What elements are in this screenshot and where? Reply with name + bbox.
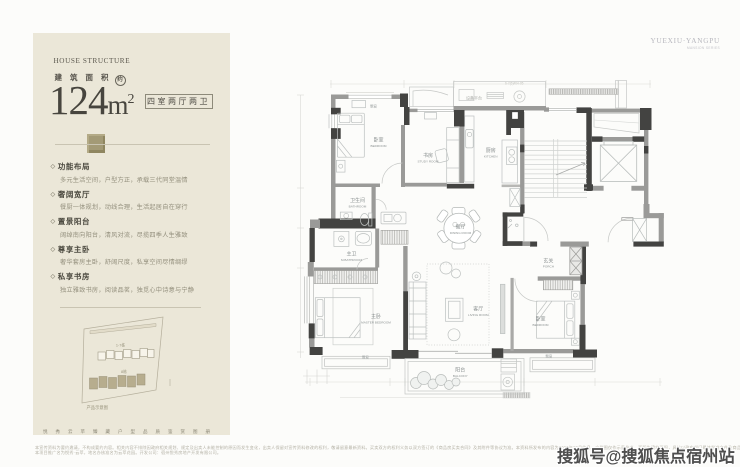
svg-text:飘窗: 飘窗 <box>546 354 553 359</box>
svg-text:MASTER BEDROOM: MASTER BEDROOM <box>361 321 391 325</box>
svg-text:书房: 书房 <box>423 152 433 159</box>
svg-text:1-7栋: 1-7栋 <box>116 343 125 348</box>
svg-text:BATHROOM: BATHROOM <box>349 205 367 209</box>
svg-text:主卧: 主卧 <box>371 313 381 320</box>
svg-text:厨房: 厨房 <box>486 147 496 154</box>
svg-text:8栋: 8栋 <box>121 369 127 374</box>
svg-text:卧室: 卧室 <box>535 316 545 323</box>
svg-text:卫生间: 卫生间 <box>350 197 365 204</box>
svg-text:玄关: 玄关 <box>543 258 553 265</box>
svg-text:BALCONY: BALCONY <box>453 374 468 378</box>
svg-text:飘窗: 飘窗 <box>362 355 369 360</box>
svg-text:客厅: 客厅 <box>473 306 483 313</box>
svg-text:设备平台: 设备平台 <box>466 95 482 101</box>
svg-text:餐厅: 餐厅 <box>455 224 465 231</box>
svg-text:LIVING ROOM: LIVING ROOM <box>468 313 489 317</box>
svg-text:BEDROOM: BEDROOM <box>533 323 549 327</box>
svg-text:DINING ROOM: DINING ROOM <box>450 231 472 235</box>
svg-text:阳台: 阳台 <box>455 367 465 374</box>
svg-text:卧室: 卧室 <box>373 137 383 144</box>
svg-text:KITCHEN: KITCHEN <box>484 155 498 159</box>
svg-text:PORCH: PORCH <box>543 265 554 269</box>
svg-text:6-7(6)#04-05: 6-7(6)#04-05 <box>505 82 524 86</box>
svg-text:主卫: 主卫 <box>346 251 356 258</box>
svg-text:STUDY ROOM: STUDY ROOM <box>418 160 439 164</box>
svg-text:飘窗: 飘窗 <box>370 104 377 109</box>
svg-text:BEDROOM: BEDROOM <box>371 144 387 148</box>
svg-text:M.BATHROOM: M.BATHROOM <box>341 258 363 262</box>
